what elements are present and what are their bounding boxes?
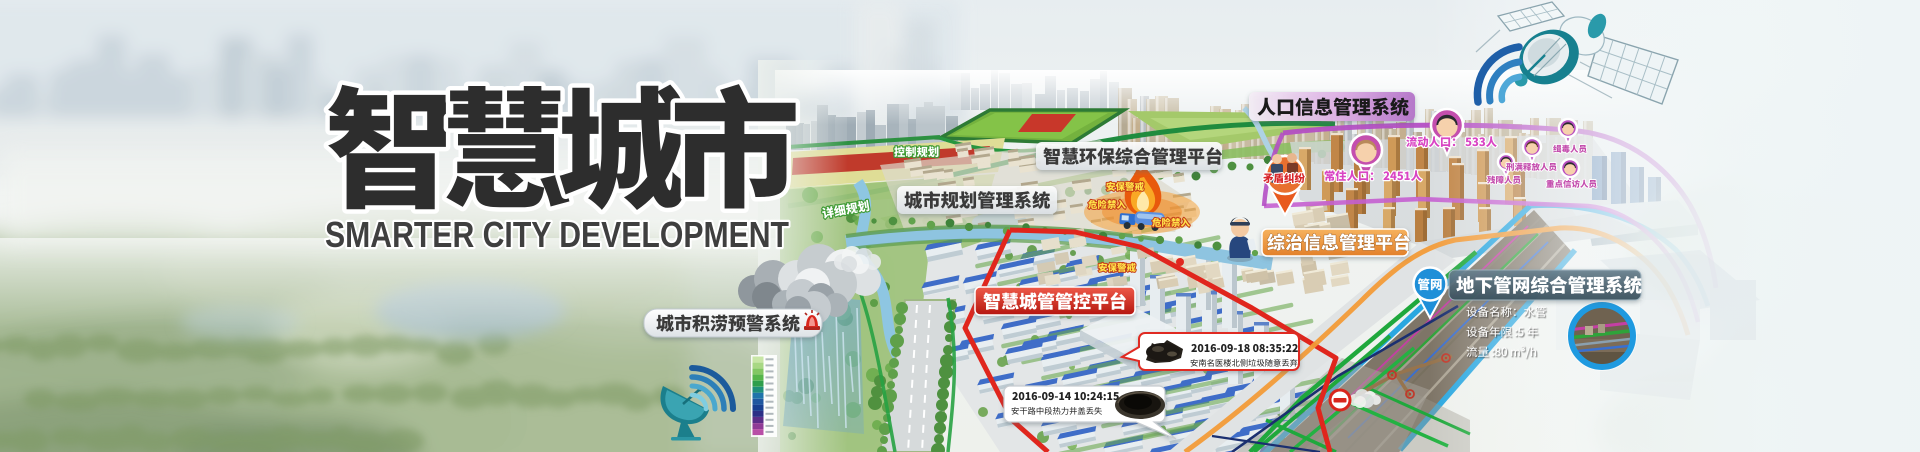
svg-text:SMARTER CITY DEVELOPMENT: SMARTER CITY DEVELOPMENT bbox=[325, 214, 789, 255]
